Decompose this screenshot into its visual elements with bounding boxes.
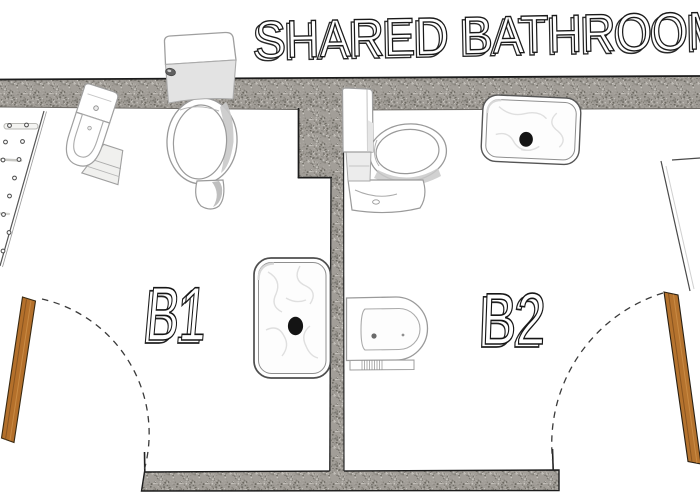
svg-text:B1: B1	[144, 272, 211, 357]
svg-text:B2: B2	[480, 279, 547, 360]
svg-text:SHARED BATHROOM: SHARED BATHROOM	[255, 2, 700, 70]
